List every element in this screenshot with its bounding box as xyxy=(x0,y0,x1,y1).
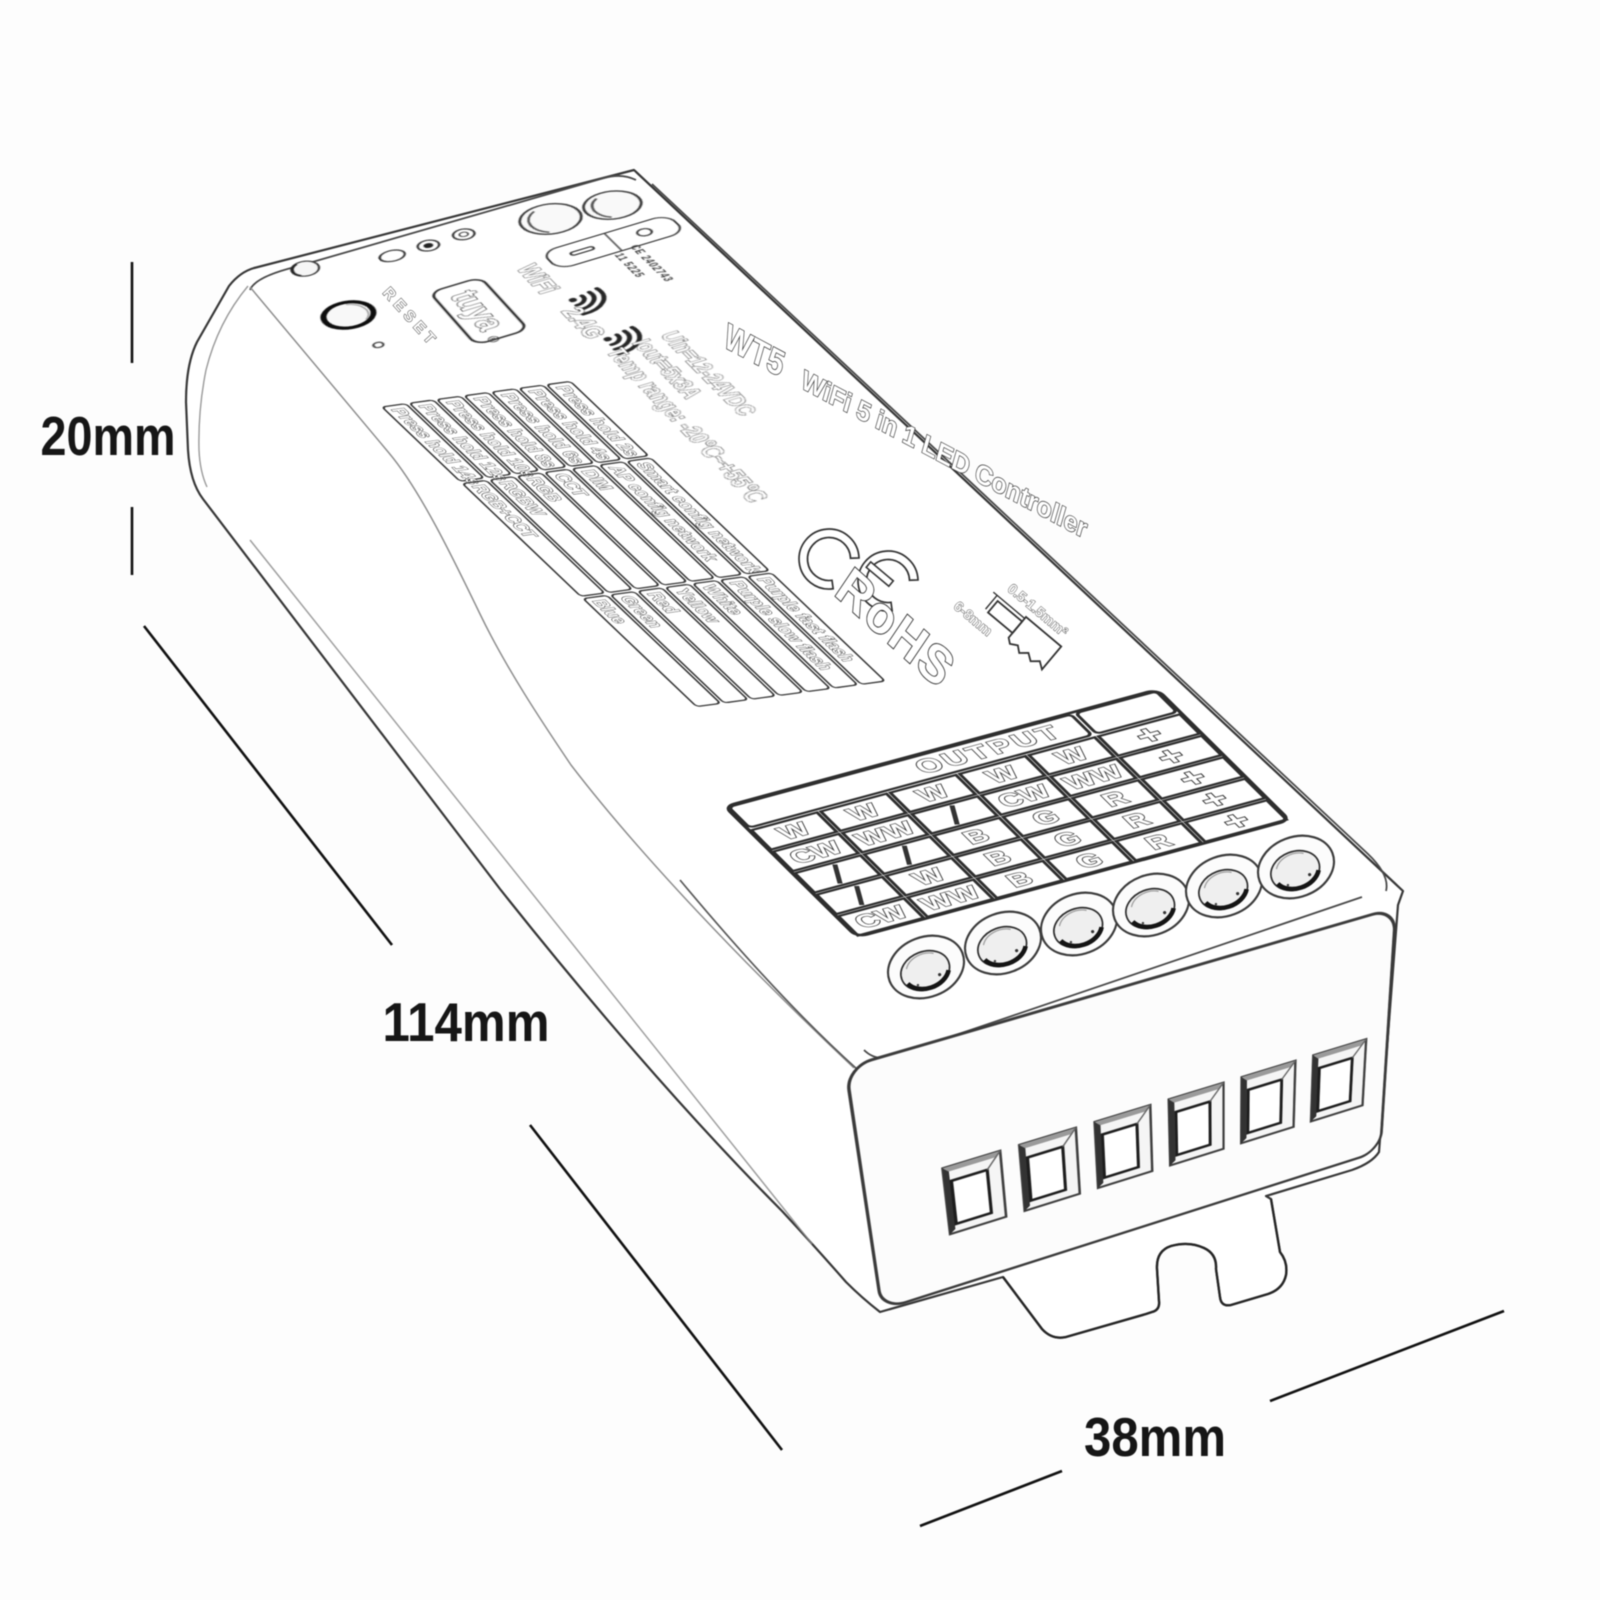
svg-text:38mm: 38mm xyxy=(1084,1406,1226,1468)
svg-text:+: + xyxy=(1213,806,1259,836)
svg-text:114mm: 114mm xyxy=(383,991,550,1053)
svg-text:WT5: WT5 xyxy=(720,317,789,385)
svg-text:20mm: 20mm xyxy=(41,405,176,467)
svg-text:WiFi 5 in 1 LED Controller: WiFi 5 in 1 LED Controller xyxy=(798,364,1091,544)
svg-text:RoHS: RoHS xyxy=(827,557,966,700)
svg-text:CW: CW xyxy=(848,901,914,932)
svg-text:RESET: RESET xyxy=(379,284,441,351)
